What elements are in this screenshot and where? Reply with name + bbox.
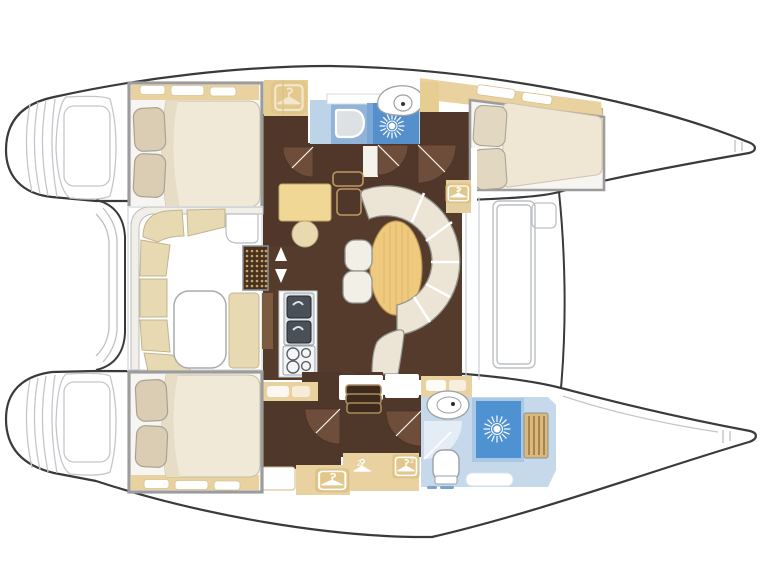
svg-text:2: 2	[410, 458, 414, 465]
svg-text:2: 2	[456, 187, 460, 194]
